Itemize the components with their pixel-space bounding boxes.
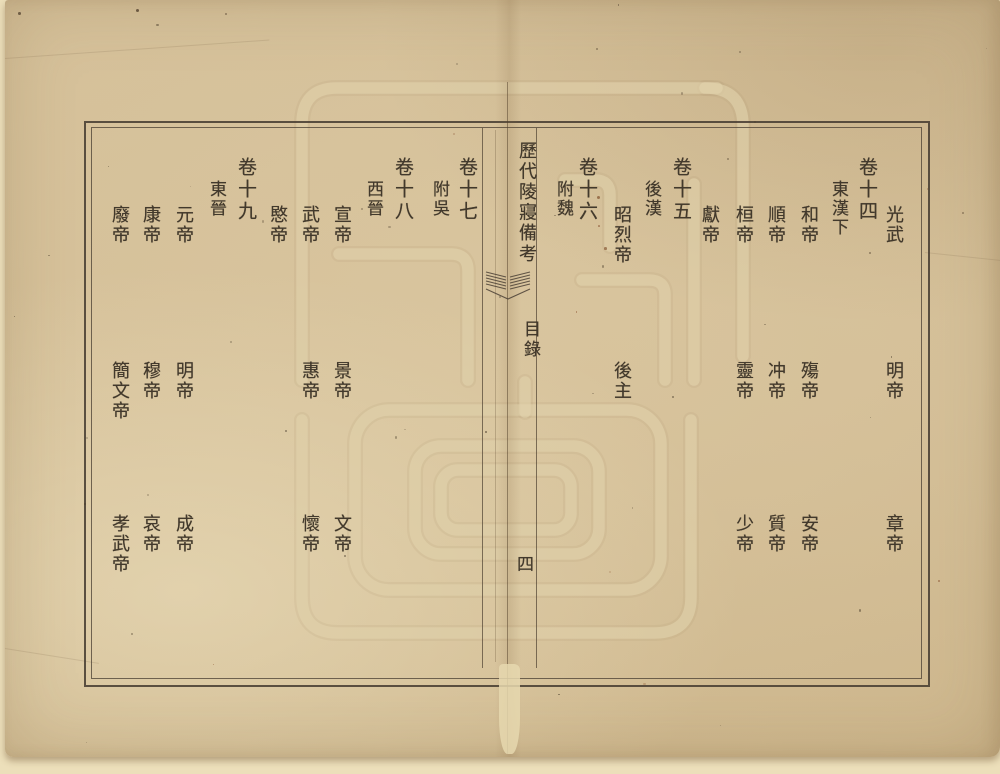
toc-dynasty-label: 附魏	[545, 180, 571, 218]
toc-emperor-entry: 冲帝	[758, 361, 784, 401]
toc-emperor-entry: 元帝	[166, 205, 192, 245]
toc-dynasty-label: 東晉	[198, 180, 224, 218]
toc-emperor-entry: 明帝	[876, 361, 902, 401]
fold-repair-patch	[499, 664, 520, 754]
toc-emperor-entry: 少帝	[726, 514, 752, 554]
age-speck	[576, 311, 577, 312]
toc-emperor-entry: 宣帝	[324, 205, 350, 245]
toc-chapter-label: 卷十八	[386, 157, 412, 223]
toc-emperor-entry: 殤帝	[791, 361, 817, 401]
age-speck	[14, 316, 15, 317]
age-speck	[388, 226, 390, 228]
age-speck	[319, 517, 320, 518]
toc-dynasty-label: 東漢下	[820, 180, 846, 237]
paper-sheet: 歷代陵寢備考 目錄 四 光武明帝章帝卷十四東漢下和帝殤帝安帝順帝冲帝質帝桓帝靈帝…	[5, 0, 1000, 757]
toc-emperor-entry: 武帝	[292, 205, 318, 245]
toc-emperor-entry: 靈帝	[726, 361, 752, 401]
toc-emperor-entry: 簡文帝	[102, 361, 128, 421]
toc-emperor-entry: 孝武帝	[102, 514, 128, 574]
toc-dynasty-label: 後漢	[633, 180, 659, 218]
section-title: 目錄	[512, 320, 538, 360]
toc-chapter-label: 卷十四	[850, 157, 876, 223]
age-speck	[604, 247, 607, 250]
toc-emperor-entry: 穆帝	[133, 361, 159, 401]
toc-emperor-entry: 安帝	[791, 514, 817, 554]
toc-emperor-entry: 獻帝	[692, 205, 718, 245]
toc-emperor-entry: 明帝	[166, 361, 192, 401]
age-speck	[18, 12, 21, 15]
toc-dynasty-label: 西晉	[355, 180, 381, 218]
toc-emperor-entry: 愍帝	[260, 205, 286, 245]
toc-emperor-entry: 文帝	[324, 514, 350, 554]
toc-chapter-label: 卷十五	[664, 157, 690, 223]
toc-chapter-label: 卷十七	[450, 157, 476, 223]
toc-chapter-label: 卷十六	[570, 157, 596, 223]
toc-emperor-entry: 廢帝	[102, 205, 128, 245]
book-title: 歷代陵寢備考	[509, 141, 535, 265]
toc-emperor-entry: 質帝	[758, 514, 784, 554]
toc-emperor-entry: 光武	[876, 205, 902, 245]
toc-emperor-entry: 桓帝	[726, 205, 752, 245]
age-speck	[891, 356, 893, 358]
toc-emperor-entry: 康帝	[133, 205, 159, 245]
toc-dynasty-label: 附吳	[421, 180, 447, 218]
age-speck	[86, 437, 88, 439]
age-speck	[602, 265, 604, 267]
toc-emperor-entry: 和帝	[791, 205, 817, 245]
center-column-left-rule	[482, 128, 483, 668]
age-speck	[48, 255, 49, 256]
age-speck	[225, 13, 227, 15]
toc-emperor-entry: 景帝	[324, 361, 350, 401]
age-speck	[499, 296, 501, 298]
age-speck	[869, 252, 871, 254]
age-speck	[938, 580, 940, 582]
age-speck	[643, 683, 646, 686]
toc-emperor-entry: 哀帝	[133, 514, 159, 554]
age-speck	[681, 92, 683, 94]
age-speck	[727, 158, 729, 160]
toc-emperor-entry: 惠帝	[292, 361, 318, 401]
toc-emperor-entry: 後主	[604, 361, 630, 401]
age-speck	[147, 494, 149, 496]
toc-emperor-entry: 昭烈帝	[604, 205, 630, 265]
folio-number: 四	[505, 555, 531, 574]
toc-emperor-entry: 懷帝	[292, 514, 318, 554]
age-speck	[404, 429, 405, 430]
toc-emperor-entry: 順帝	[758, 205, 784, 245]
toc-emperor-entry: 章帝	[876, 514, 902, 554]
fishtail-ornament-icon	[485, 270, 531, 302]
toc-chapter-label: 卷十九	[229, 157, 255, 223]
toc-emperor-entry: 成帝	[166, 514, 192, 554]
scanned-book-spread: 歷代陵寢備考 目錄 四 光武明帝章帝卷十四東漢下和帝殤帝安帝順帝冲帝質帝桓帝靈帝…	[0, 0, 1000, 774]
